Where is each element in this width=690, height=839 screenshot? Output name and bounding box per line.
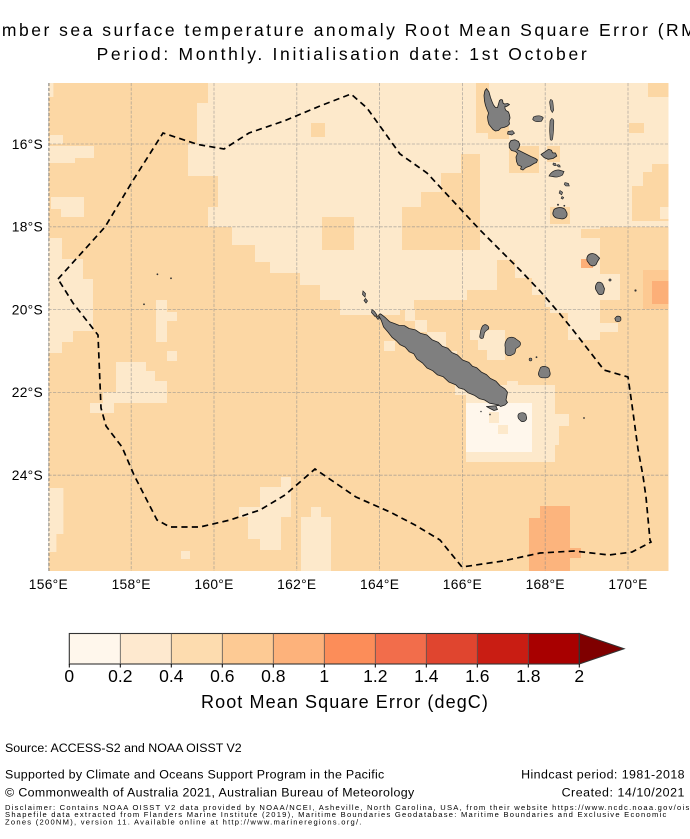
svg-text:20°S: 20°S	[12, 302, 43, 317]
svg-text:0.2: 0.2	[108, 666, 132, 686]
svg-text:18°S: 18°S	[12, 220, 43, 235]
svg-text:Supported by Climate and Ocean: Supported by Climate and Oceans Support …	[5, 768, 385, 782]
svg-text:0: 0	[64, 666, 74, 686]
svg-text:Created: 14/10/2021: Created: 14/10/2021	[562, 786, 685, 800]
svg-text:Source: ACCESS-S2 and NOAA OIS: Source: ACCESS-S2 and NOAA OISST V2	[5, 741, 242, 755]
svg-text:158°E: 158°E	[112, 577, 151, 592]
svg-text:1.8: 1.8	[516, 666, 540, 686]
svg-text:© Commonwealth of Australia 20: © Commonwealth of Australia 2021, Austra…	[5, 786, 415, 800]
svg-text:166°E: 166°E	[443, 577, 482, 592]
svg-text:0.6: 0.6	[210, 666, 234, 686]
svg-text:164°E: 164°E	[360, 577, 399, 592]
svg-text:170°E: 170°E	[608, 577, 647, 592]
svg-text:Zones (200NM), version 11. Ava: Zones (200NM), version 11. Available onl…	[5, 817, 363, 826]
svg-text:16°S: 16°S	[12, 137, 43, 152]
svg-text:0.4: 0.4	[159, 666, 184, 686]
svg-text:0.8: 0.8	[261, 666, 285, 686]
svg-text:162°E: 162°E	[277, 577, 316, 592]
svg-text:160°E: 160°E	[194, 577, 233, 592]
svg-text:1.2: 1.2	[363, 666, 387, 686]
svg-text:2: 2	[574, 666, 584, 686]
svg-text:Root Mean Square Error (degC): Root Mean Square Error (degC)	[201, 692, 489, 712]
svg-text:1.6: 1.6	[465, 666, 489, 686]
svg-text:1.4: 1.4	[414, 666, 439, 686]
svg-text:156°E: 156°E	[29, 577, 68, 592]
svg-text:22°S: 22°S	[12, 385, 43, 400]
svg-text:24°S: 24°S	[12, 468, 43, 483]
svg-text:168°E: 168°E	[526, 577, 565, 592]
svg-text:Hindcast period: 1981-2018: Hindcast period: 1981-2018	[521, 768, 685, 782]
svg-text:November sea surface temperatu: November sea surface temperature anomaly…	[0, 20, 690, 40]
svg-text:Period: Monthly. Initialisatio: Period: Monthly. Initialisation date: 1s…	[97, 44, 590, 64]
svg-text:1: 1	[319, 666, 329, 686]
